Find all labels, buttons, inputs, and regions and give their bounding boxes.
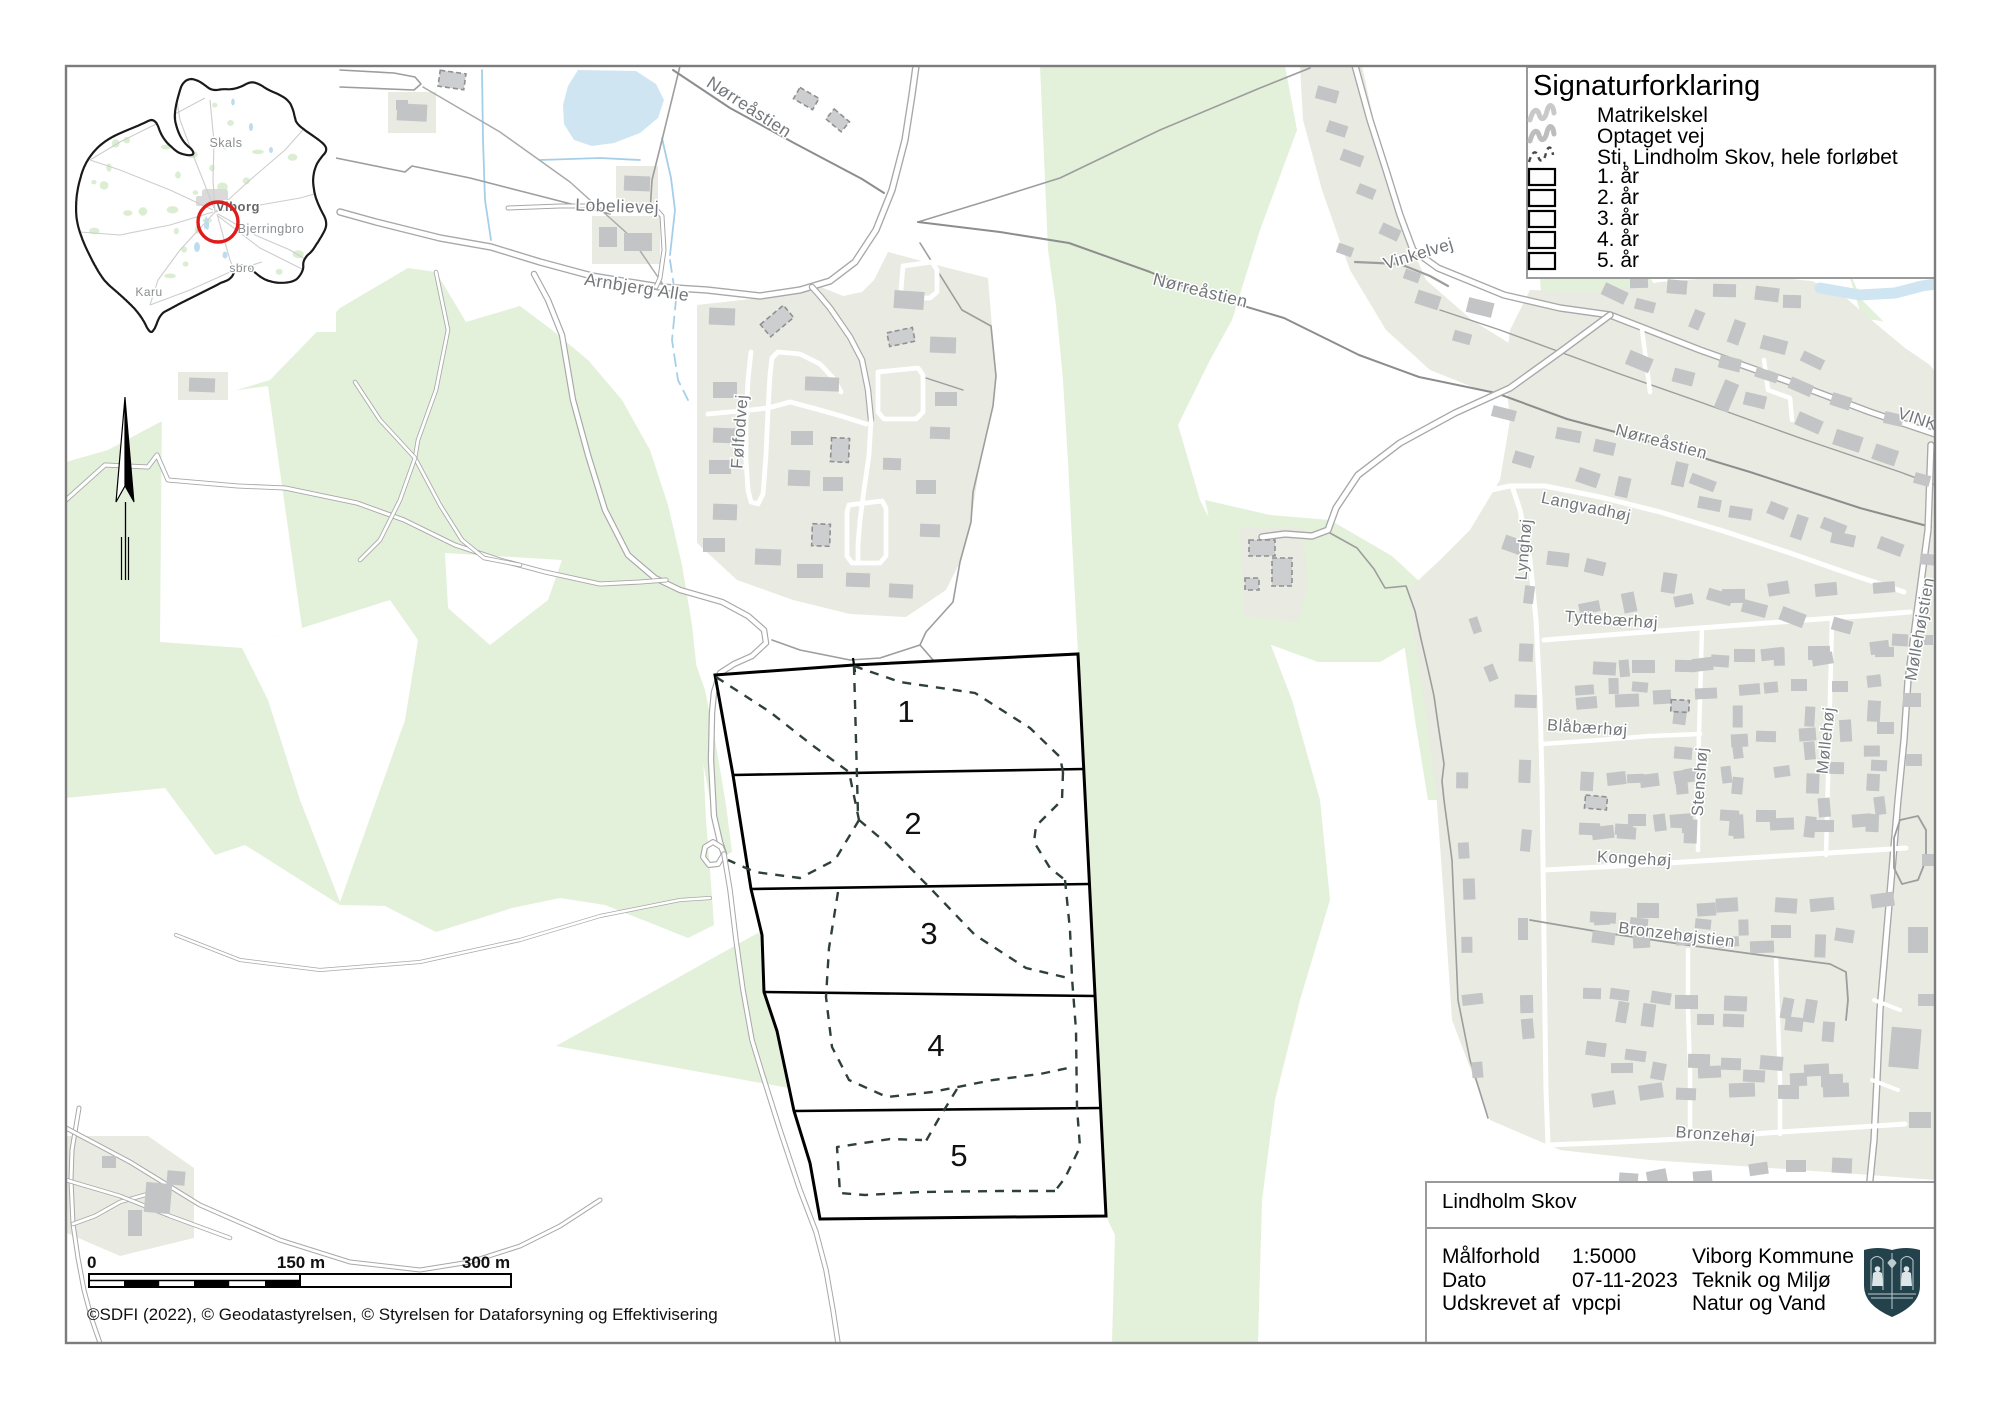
svg-text:Udskrevet af: Udskrevet af (1442, 1292, 1560, 1315)
svg-text:Teknik og Miljø: Teknik og Miljø (1692, 1269, 1831, 1292)
svg-text:1:5000: 1:5000 (1572, 1245, 1636, 1268)
svg-text:4. år: 4. år (1597, 228, 1639, 251)
svg-text:sbro: sbro (229, 261, 254, 275)
svg-text:Lindholm Skov: Lindholm Skov (1442, 1190, 1577, 1213)
svg-text:5: 5 (950, 1138, 967, 1173)
svg-text:3. år: 3. år (1597, 207, 1639, 230)
svg-text:Signaturforklaring: Signaturforklaring (1533, 70, 1760, 102)
svg-text:Skals: Skals (209, 136, 242, 150)
svg-text:2: 2 (904, 806, 921, 841)
svg-text:4: 4 (927, 1028, 944, 1063)
svg-text:Karu: Karu (135, 285, 162, 299)
svg-text:Sti, Lindholm Skov, hele forlø: Sti, Lindholm Skov, hele forløbet (1597, 146, 1898, 169)
svg-text:Dato: Dato (1442, 1269, 1486, 1292)
svg-text:07-11-2023: 07-11-2023 (1572, 1269, 1678, 1292)
svg-text:1. år: 1. år (1597, 165, 1639, 188)
svg-text:2. år: 2. år (1597, 186, 1639, 209)
svg-text:Målforhold: Målforhold (1442, 1245, 1540, 1268)
svg-text:3: 3 (920, 916, 937, 951)
svg-text:©SDFI (2022), © Geodatastyrels: ©SDFI (2022), © Geodatastyrelsen, © Styr… (87, 1305, 718, 1324)
svg-text:Optaget vej: Optaget vej (1597, 125, 1704, 148)
svg-text:1: 1 (897, 694, 914, 729)
svg-text:Matrikelskel: Matrikelskel (1597, 104, 1708, 127)
svg-text:Lobelievej: Lobelievej (575, 195, 659, 218)
svg-text:Viborg Kommune: Viborg Kommune (1692, 1245, 1854, 1268)
svg-text:Natur og Vand: Natur og Vand (1692, 1292, 1826, 1315)
svg-text:5. år: 5. år (1597, 249, 1639, 272)
svg-text:vpcpi: vpcpi (1572, 1292, 1621, 1315)
svg-text:Bjerringbro: Bjerringbro (238, 222, 305, 236)
svg-text:150 m: 150 m (277, 1253, 325, 1272)
svg-text:0: 0 (87, 1253, 96, 1272)
svg-text:300 m: 300 m (462, 1253, 510, 1272)
